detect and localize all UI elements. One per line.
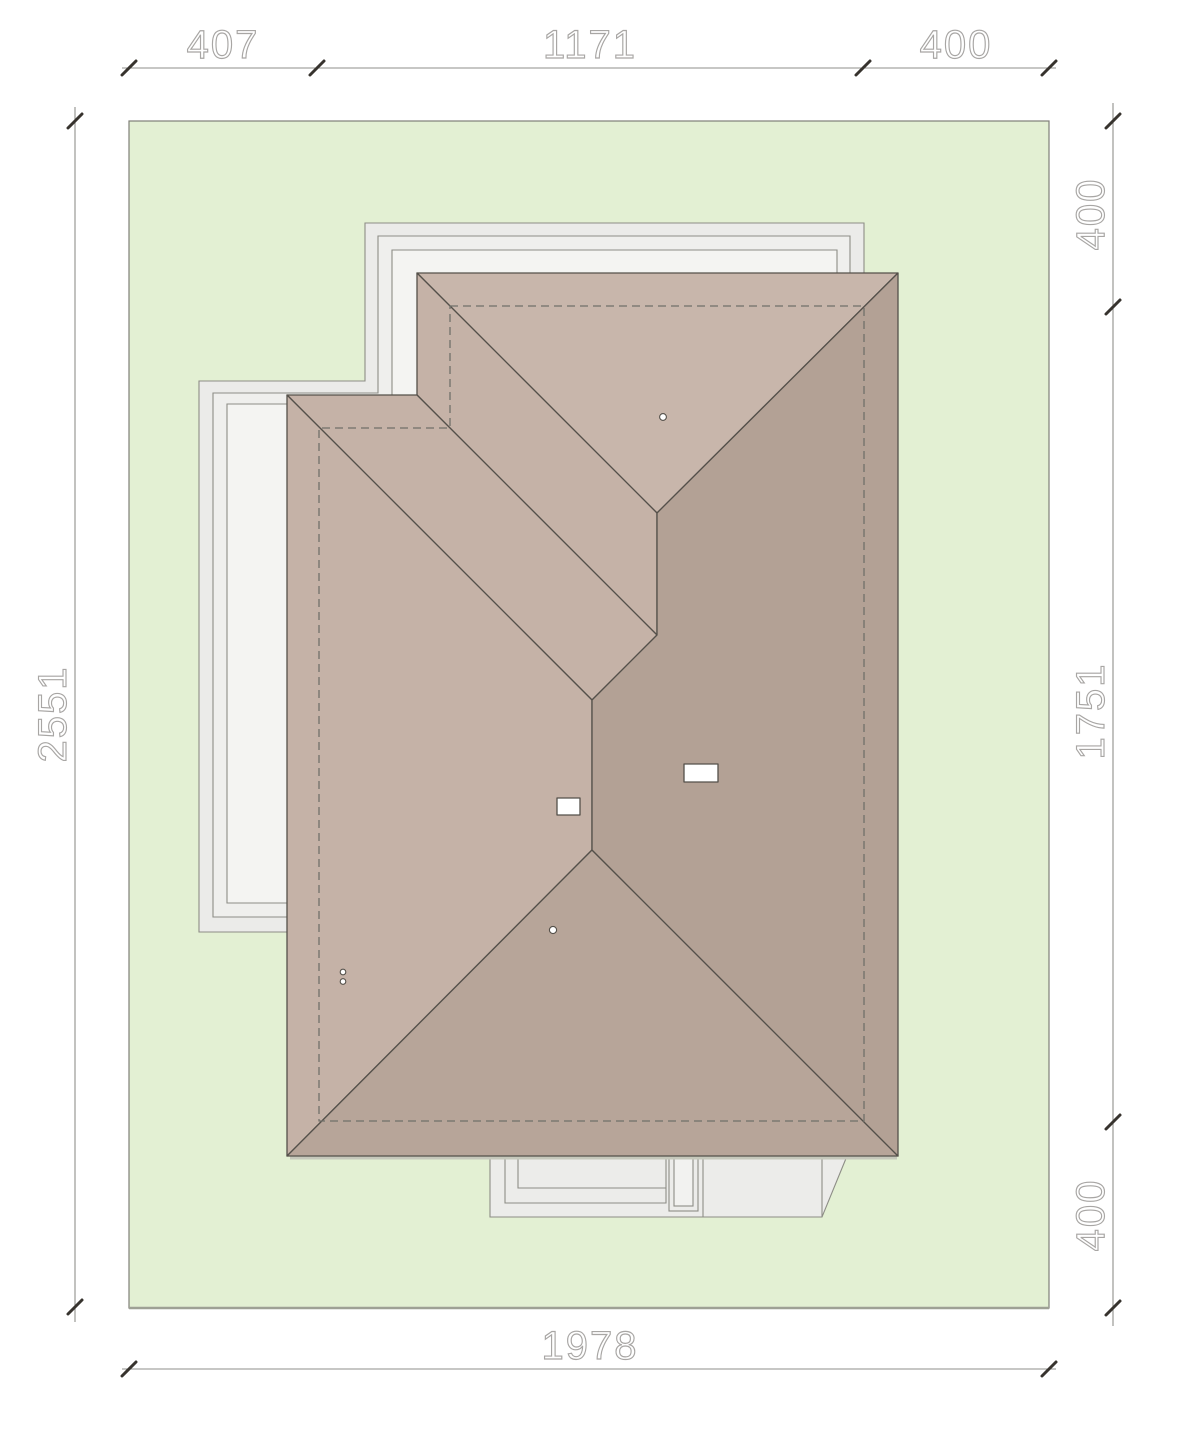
dim-left-label: 2551 xyxy=(31,666,75,763)
dim-right-top-label: 400 xyxy=(1069,178,1113,251)
dim-bottom-label: 1978 xyxy=(542,1324,639,1368)
dim-right-mid-label: 1751 xyxy=(1069,663,1113,760)
vent-icon xyxy=(549,926,556,933)
dim-top: 407 1171 400 xyxy=(122,23,1056,75)
dim-top-left-label: 407 xyxy=(187,23,260,67)
dim-left: 2551 xyxy=(31,107,82,1322)
dim-top-mid-label: 1171 xyxy=(543,23,637,67)
dim-top-right-label: 400 xyxy=(920,23,993,67)
dim-right: 400 1751 400 xyxy=(1069,103,1120,1326)
vent-icon xyxy=(340,969,346,975)
vent-icon xyxy=(340,979,346,985)
site-plan: 407 1171 400 400 1751 400 2551 xyxy=(0,0,1200,1443)
roof xyxy=(287,273,898,1156)
dim-bottom: 1978 xyxy=(122,1324,1056,1376)
chimney-small xyxy=(557,798,580,815)
dim-right-bottom-label: 400 xyxy=(1069,1179,1113,1252)
site-plan-svg: 407 1171 400 400 1751 400 2551 xyxy=(0,0,1200,1443)
bottom-terrace xyxy=(490,1156,847,1217)
terrace-chimney-inner xyxy=(674,1156,693,1206)
chimney-large xyxy=(684,764,718,782)
vent-icon xyxy=(660,414,667,421)
